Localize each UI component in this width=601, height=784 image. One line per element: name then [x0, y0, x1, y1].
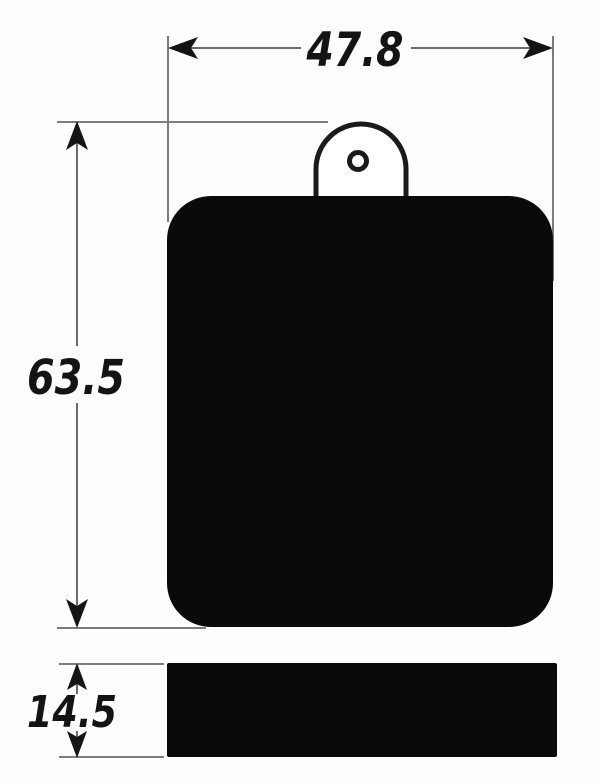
- pad-side-view: [167, 663, 557, 757]
- thickness-dimension-label: 14.5: [27, 687, 117, 738]
- thickness-dimension: 14.5: [27, 663, 164, 758]
- height-dimension-label: 63.5: [27, 350, 125, 406]
- width-dimension-label: 47.8: [306, 23, 404, 78]
- brake-pad-dimension-drawing: 47.8 63.5 14.5: [0, 0, 601, 784]
- tab-hole: [350, 153, 367, 170]
- technical-drawing-canvas: 47.8 63.5 14.5: [0, 0, 601, 784]
- pad-front-view: [167, 196, 553, 627]
